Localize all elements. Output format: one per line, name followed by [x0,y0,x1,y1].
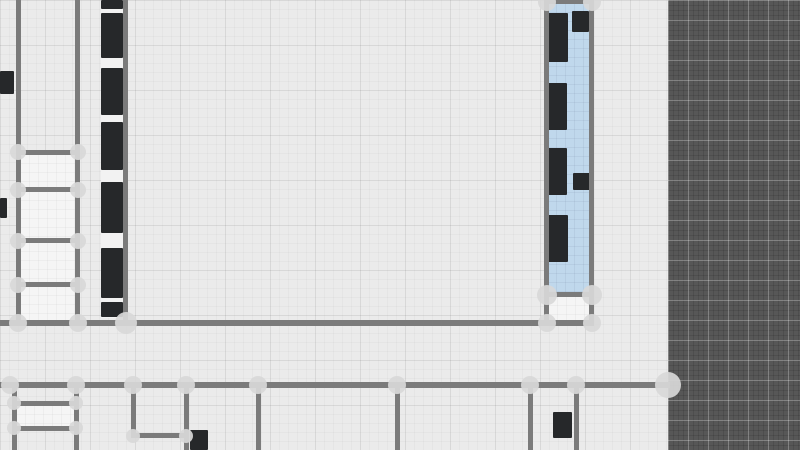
wall-segment[interactable] [589,0,594,326]
wall-joint-node[interactable] [69,421,83,435]
wall-joint-node[interactable] [10,144,26,160]
wall-joint-node[interactable] [67,376,85,394]
furniture-item[interactable] [101,182,123,233]
wall-joint-node[interactable] [7,421,21,435]
furniture-item[interactable] [553,412,572,438]
wall-joint-node[interactable] [124,376,142,394]
furniture-item[interactable] [548,215,568,262]
wall-segment[interactable] [123,0,128,326]
wall-joint-node[interactable] [582,285,602,305]
wall-joint-node[interactable] [70,233,86,249]
room-fill[interactable] [20,191,76,239]
wall-segment[interactable] [544,0,549,326]
wall-joint-node[interactable] [10,182,26,198]
furniture-item[interactable] [548,148,567,195]
wall-joint-node[interactable] [70,182,86,198]
wall-joint-node[interactable] [1,376,19,394]
wall-joint-node[interactable] [9,314,27,332]
wall-segment[interactable] [395,388,400,450]
wall-segment[interactable] [574,388,579,450]
wall-joint-node[interactable] [537,285,557,305]
furniture-item[interactable] [101,68,123,115]
wall-joint-node[interactable] [70,144,86,160]
wall-joint-node[interactable] [179,429,193,443]
wall-joint-node[interactable] [521,376,539,394]
wall-joint-node[interactable] [69,314,87,332]
furniture-item[interactable] [101,13,123,58]
wall-joint-node[interactable] [583,314,601,332]
furniture-item[interactable] [548,83,567,130]
wall-segment[interactable] [256,388,261,450]
wall-joint-node[interactable] [567,376,585,394]
wall-joint-node[interactable] [177,376,195,394]
furniture-item[interactable] [101,248,123,298]
furniture-item[interactable] [0,71,14,94]
wall-joint-node[interactable] [69,396,83,410]
furniture-item[interactable] [0,198,7,218]
wall-joint-node[interactable] [7,396,21,410]
wall-joint-node[interactable] [70,277,86,293]
wall-segment[interactable] [0,320,594,326]
furniture-item[interactable] [572,11,589,32]
wall-joint-node[interactable] [10,233,26,249]
floorplan-canvas[interactable] [0,0,800,450]
outside-canvas-area [668,0,800,450]
wall-segment[interactable] [528,388,533,450]
furniture-item[interactable] [573,173,590,190]
wall-joint-node[interactable] [538,314,556,332]
wall-joint-node[interactable] [115,312,137,334]
wall-joint-node[interactable] [655,372,681,398]
room-fill[interactable] [20,154,76,188]
room-fill[interactable] [16,405,75,427]
wall-joint-node[interactable] [126,429,140,443]
room-fill[interactable] [20,286,76,321]
wall-joint-node[interactable] [10,277,26,293]
wall-joint-node[interactable] [388,376,406,394]
wall-joint-node[interactable] [249,376,267,394]
furniture-item[interactable] [101,122,123,170]
furniture-item[interactable] [101,0,123,9]
furniture-item[interactable] [548,13,568,62]
room-fill[interactable] [20,242,76,283]
